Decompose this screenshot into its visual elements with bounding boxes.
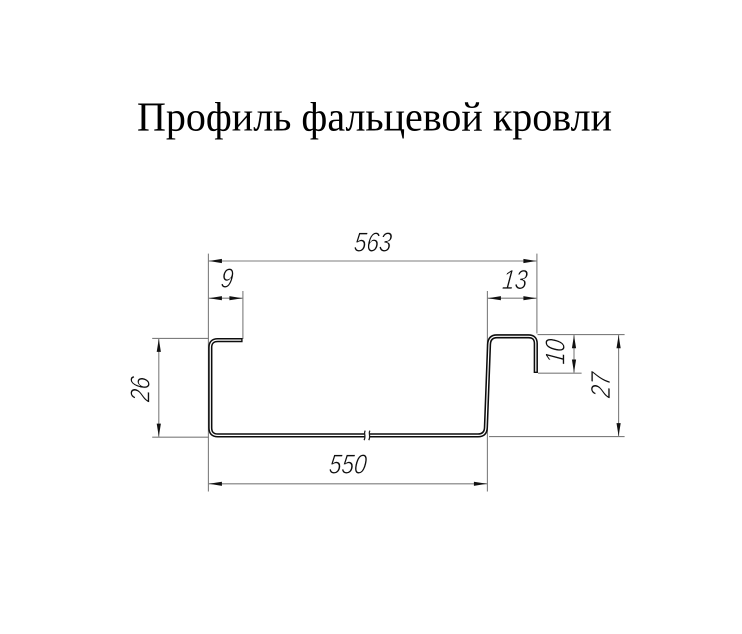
svg-text:26: 26 — [126, 374, 157, 404]
svg-text:10: 10 — [541, 337, 572, 365]
svg-text:27: 27 — [586, 370, 617, 400]
svg-text:550: 550 — [328, 450, 369, 481]
svg-text:Профиль фальцевой кровли: Профиль фальцевой кровли — [137, 94, 612, 140]
svg-text:563: 563 — [353, 227, 394, 258]
svg-text:13: 13 — [501, 265, 529, 296]
